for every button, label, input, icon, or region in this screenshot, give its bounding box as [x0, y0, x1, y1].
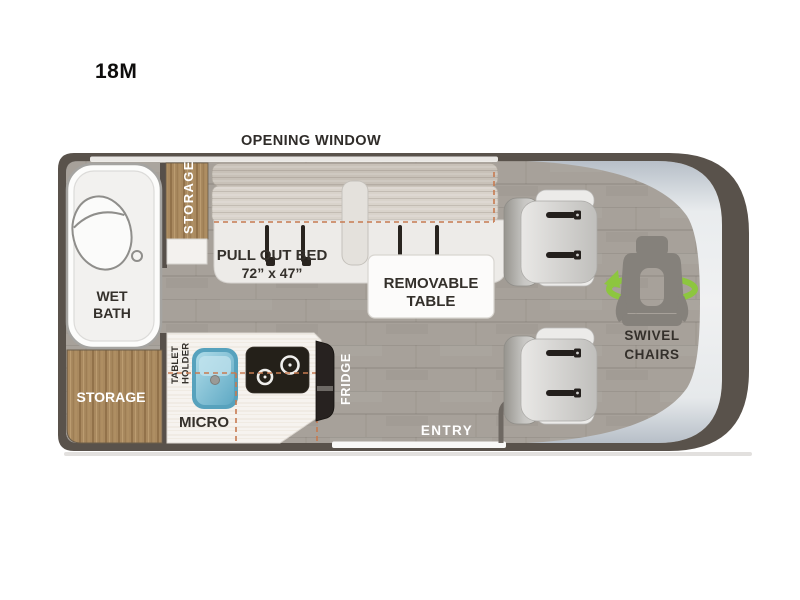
cooktop-icon	[246, 347, 309, 393]
bed-center-strap	[342, 181, 368, 265]
micro-label: MICRO	[179, 414, 229, 431]
pull-out-bed-label: PULL OUT BED	[217, 247, 328, 264]
floorplan-canvas: 18M OPENING WINDOW WET BATH STORAGE	[0, 0, 800, 600]
drain-icon	[132, 251, 142, 261]
van-shadow	[64, 452, 752, 456]
entry-label: ENTRY	[421, 423, 473, 438]
removable-table-label-line2: TABLE	[407, 293, 456, 310]
swivel-chairs-label-line2: CHAIRS	[624, 347, 679, 362]
wet-bath-label-line1: WET	[96, 288, 128, 304]
storage-upper-label: STORAGE	[181, 160, 196, 234]
floorplan-page: 18M OPENING WINDOW WET BATH STORAGE	[0, 0, 800, 600]
swivel-chair-rear	[504, 328, 597, 424]
storage-cabinet-upper: STORAGE	[166, 160, 208, 264]
removable-table: REMOVABLE TABLE	[368, 255, 494, 318]
swivel-chair-front	[504, 190, 597, 286]
fridge-label: FRIDGE	[339, 353, 353, 405]
storage-lower-label: STORAGE	[77, 389, 146, 405]
removable-table-label-line1: REMOVABLE	[384, 275, 479, 292]
opening-window-label: OPENING WINDOW	[241, 133, 381, 149]
entry-door	[332, 442, 506, 449]
wet-bath-label-line2: BATH	[93, 305, 131, 321]
kitchen-counter: TABLET HOLDER MICRO	[167, 333, 321, 443]
sink-icon	[192, 348, 238, 409]
wet-bath: WET BATH	[65, 164, 161, 348]
opening-window-glass	[90, 157, 498, 163]
swivel-chairs-label-line1: SWIVEL	[624, 328, 679, 343]
tablet-holder-label: TABLET HOLDER	[170, 343, 192, 384]
seat-cutout	[640, 268, 664, 306]
storage-cabinet-lower: STORAGE	[67, 350, 162, 443]
model-label: 18M	[95, 60, 137, 83]
pull-out-bed-size: 72” x 47”	[242, 265, 303, 281]
